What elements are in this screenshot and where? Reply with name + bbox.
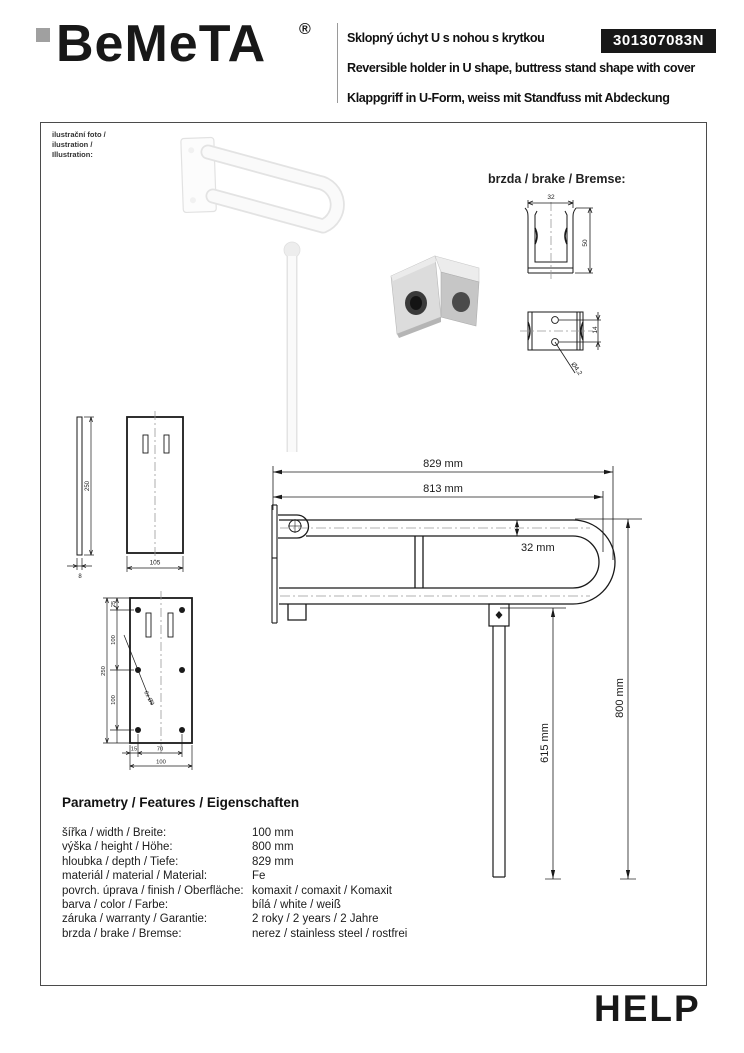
brake-bracket-photo xyxy=(383,246,493,341)
product-code-badge: 301307083N xyxy=(601,29,716,53)
param-label: materiál / material / Material: xyxy=(62,869,252,883)
dim-615: 615 mm xyxy=(539,723,551,763)
param-label: výška / height / Höhe: xyxy=(62,840,252,854)
table-row: záruka / warranty / Garantie: 2 roky / 2… xyxy=(62,912,482,926)
param-value: 829 mm xyxy=(252,855,482,869)
help-logo: HELP xyxy=(594,988,701,1030)
table-row: výška / height / Höhe: 800 mm xyxy=(62,840,482,854)
table-row: šířka / width / Breite: 100 mm xyxy=(62,826,482,840)
param-value: 800 mm xyxy=(252,840,482,854)
parameters-table: šířka / width / Breite: 100 mm výška / h… xyxy=(62,826,482,941)
cover-side-thickness-dim: 8 xyxy=(78,574,82,580)
param-value: bílá / white / weiß xyxy=(252,898,482,912)
illustration-caption: ilustrační foto / ilustration / Illustra… xyxy=(52,130,106,160)
mount-spacing2-dim: 100 xyxy=(111,695,117,705)
caption-line-1: ilustrační foto / xyxy=(52,130,106,140)
table-row: barva / color / Farbe: bílá / white / we… xyxy=(62,898,482,912)
param-label: barva / color / Farbe: xyxy=(62,898,252,912)
brake-drawing: 32 50 14 Ø4,2 xyxy=(505,188,630,388)
table-row: hloubka / depth / Tiefe: 829 mm xyxy=(62,855,482,869)
product-title-english: Reversible holder in U shape, buttress s… xyxy=(347,61,719,75)
cover-and-plate-drawings: 250 8 105 xyxy=(60,405,220,785)
param-value: nerez / stainless steel / rostfrei xyxy=(252,927,482,941)
registered-mark: ® xyxy=(299,21,311,39)
brake-section-label: brzda / brake / Bremse: xyxy=(488,172,626,186)
dim-800: 800 mm xyxy=(614,678,626,718)
param-value: komaxit / comaxit / Komaxit xyxy=(252,884,482,898)
mount-total-height-dim: 250 xyxy=(101,666,107,676)
param-value: 100 mm xyxy=(252,826,482,840)
table-row: povrch. úprava / finish / Oberfläche: ko… xyxy=(62,884,482,898)
cover-front-width-dim: 105 xyxy=(150,560,161,567)
param-label: povrch. úprava / finish / Oberfläche: xyxy=(62,884,252,898)
param-label: brzda / brake / Bremse: xyxy=(62,927,252,941)
mount-top-offset-dim: 25 xyxy=(111,601,117,607)
parameters-heading: Parametry / Features / Eigenschaften xyxy=(62,795,299,810)
param-label: hloubka / depth / Tiefe: xyxy=(62,855,252,869)
caption-line-3: Illustration: xyxy=(52,150,106,160)
brake-dim-width: 32 xyxy=(547,194,555,201)
brake-dim-hole-dia: Ø4,2 xyxy=(569,361,583,377)
product-title-german: Klappgriff in U-Form, weiss mit Standfus… xyxy=(347,91,719,105)
mount-bottom-total-dim: 100 xyxy=(156,760,166,766)
param-label: záruka / warranty / Garantie: xyxy=(62,912,252,926)
brand-square-icon xyxy=(36,28,50,42)
mount-spacing1-dim: 100 xyxy=(111,635,117,645)
dim-813: 813 mm xyxy=(423,483,463,495)
caption-line-2: ilustration / xyxy=(52,140,106,150)
dim-829: 829 mm xyxy=(423,458,463,470)
param-value: Fe xyxy=(252,869,482,883)
mount-holes-label: 6x Ø9 xyxy=(142,690,155,706)
param-value: 2 roky / 2 years / 2 Jahre xyxy=(252,912,482,926)
brand-logo: BeMeTA xyxy=(56,14,266,74)
brake-dim-height: 50 xyxy=(582,239,589,247)
param-label: šířka / width / Breite: xyxy=(62,826,252,840)
dim-32: 32 mm xyxy=(521,542,555,554)
cover-side-height-dim: 250 xyxy=(85,480,91,491)
mount-bottom-center-dim: 70 xyxy=(157,747,163,753)
header-divider xyxy=(337,23,338,103)
table-row: materiál / material / Material: Fe xyxy=(62,869,482,883)
brake-dim-spacing: 14 xyxy=(592,326,599,334)
mount-bottom-left-dim: 15 xyxy=(131,747,137,753)
table-row: brzda / brake / Bremse: nerez / stainles… xyxy=(62,927,482,941)
datasheet-page: BeMeTA ® Sklopný úchyt U s nohou s krytk… xyxy=(0,0,744,1053)
